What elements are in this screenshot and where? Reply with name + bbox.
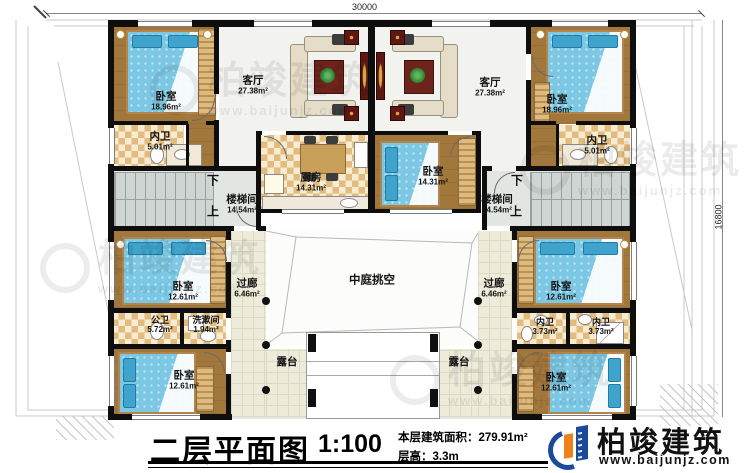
stair-up-text: 上 [207,205,219,219]
wall [226,226,231,240]
room-area: 27.38m² [475,88,505,97]
wall [112,308,231,313]
room-label-living-right: 客厅27.38m² [475,76,505,97]
room-name: 卧室 [545,371,566,383]
wall [186,124,189,168]
drawing-scale: 1:100 [318,430,382,459]
floor-corridor-left [231,231,266,417]
dimension-right-text: 16800 [714,204,724,229]
floor-height-text: 层高：3.3m [398,448,459,464]
stair-down-text: 下 [511,174,523,188]
dimension-right-value: 16800 [714,204,724,229]
wall [108,226,234,231]
room-name: 客厅 [479,76,500,88]
room-area: 18.96m² [542,105,572,114]
room-name: 卧室 [422,165,443,177]
stair-down-text: 下 [207,174,219,188]
floor-plan-canvas: 30000 16800 [0,0,750,473]
dimension-line-top [46,13,702,14]
wall [630,20,636,128]
wall [112,344,231,349]
lamp-icon [203,30,212,39]
wall [526,121,556,125]
wall [256,131,262,135]
company-logo-url: www.baijunjz.com [599,453,731,467]
room-label-bedroom-bottom-right: 卧室12.61m² [541,371,571,392]
cabinet [344,106,359,121]
wall [490,20,552,27]
window [109,128,115,164]
floor-hall-right [481,131,526,171]
stair-up-text: 上 [510,205,522,219]
room-area: 5.72m² [147,326,172,335]
roof-hatch-left [56,416,114,440]
wall [516,166,636,171]
room-area: 6.46m² [481,289,506,298]
window [552,21,608,27]
room-area: 12.61m² [168,292,198,301]
room-label-living-left: 客厅27.38m² [238,74,268,95]
window [631,128,637,164]
bed [122,237,212,305]
room-label-bath-top-left: 内卫5.01m² [147,130,172,151]
window [631,242,637,300]
room-name: 内卫 [586,134,607,146]
railing-post [308,389,316,407]
dimension-top-text: 30000 [352,2,377,12]
wall [452,209,481,213]
wall [258,226,266,231]
room-label-corridor-right: 过廊6.46m² [481,277,506,298]
room-area: 14.31m² [296,183,326,192]
room-label-bedroom-mid-left: 卧室12.61m² [168,280,198,301]
railing-post [430,334,438,352]
wall [512,344,636,349]
lamp-icon [116,30,125,39]
room-name: 过廊 [483,277,504,289]
room-area: 14.31m² [418,177,448,186]
wall [112,121,188,125]
wall [108,414,132,420]
window [631,356,637,406]
room-area: 12.61m² [541,383,571,392]
wall [180,313,184,344]
room-label-bedroom-mid-center: 卧室14.31m² [418,165,448,186]
wall [368,20,375,213]
room-name: 露台 [277,356,298,368]
lamp-icon [536,30,545,39]
title-underline [148,461,548,468]
floor-corridor-right [478,231,512,417]
room-area: 12.61m² [169,381,199,390]
wall [372,209,390,213]
company-logo-icon [548,422,594,468]
column [262,297,270,305]
room-name: 卧室 [172,280,193,292]
railing-post [308,334,316,352]
window [254,21,312,27]
room-area: 14.54m² [481,205,513,214]
plant-icon [410,68,425,83]
stair-down-label: 下 [207,172,219,189]
floor-hall-left [219,131,256,171]
room-area: 5.01m² [584,146,609,155]
toilet-icon [521,326,533,342]
room-name: 客厅 [242,74,263,86]
lamp-icon [116,240,125,249]
room-name: 卧室 [155,90,176,102]
room-label-stair-left: 楼梯间14.54m² [226,193,258,214]
column [474,341,482,349]
floor-area-text: 本层建筑面积：279.91m² [398,429,528,445]
room-label-atrium: 中庭挑空 [349,274,395,287]
room-area: 18.96m² [151,102,181,111]
lamp-icon [620,30,629,39]
room-area: 6.46m² [234,289,259,298]
room-name: 厨房 [300,171,321,183]
room-name: 卧室 [546,93,567,105]
column [474,386,482,394]
room-area: 5.01m² [147,142,172,151]
stair-treads-left [114,172,214,227]
room-label-stair-right: 楼梯间14.54m² [481,193,513,214]
room-label-bath-br-2: 内卫3.73m² [588,317,613,337]
room-name: 内卫 [536,317,554,327]
balcony-railing [306,332,440,419]
stair-down-label: 下 [511,172,523,189]
room-name: 洗漱间 [192,315,219,325]
window [390,209,452,214]
cabinet [344,30,359,45]
room-label-washroom: 洗漱间1.94m² [192,315,219,335]
room-name: 中庭挑空 [349,274,395,286]
railing-post [430,389,438,407]
wall [476,131,481,213]
window [132,415,200,420]
wall [256,131,261,230]
plant-icon [320,68,335,83]
wall [512,226,517,240]
wall [526,27,531,54]
window [432,21,490,27]
dining-table [300,144,346,174]
stair-treads-right [530,172,630,227]
room-label-kitchen: 厨房14.31m² [296,171,326,192]
floor-closet-top-right [531,124,556,168]
tv-cabinet [376,52,385,100]
stove-icon [354,142,368,168]
room-label-public-bath: 公卫5.72m² [147,315,172,335]
room-name: 公卫 [151,315,169,325]
room-name: 卧室 [550,280,571,292]
wall [526,80,531,171]
floor-atrium [266,231,478,345]
room-label-bedroom-top-left: 卧室18.96m² [151,90,181,111]
wall [108,20,114,128]
window [109,242,115,300]
room-label-corridor-left: 过廊6.46m² [234,277,259,298]
room-label-bedroom-top-right: 卧室18.96m² [542,93,572,114]
wall [214,120,219,171]
room-area: 14.54m² [226,205,258,214]
wall [286,131,372,135]
chair [304,136,316,144]
wall [556,124,559,168]
room-name: 楼梯间 [226,193,258,205]
dimension-top-value: 30000 [352,2,377,12]
wall [512,308,636,313]
wall [214,27,219,94]
column [262,341,270,349]
cabinet [390,106,405,121]
stair-up-label: 上 [510,203,522,220]
fridge-icon [264,174,284,194]
atrium-void-outline [266,231,478,345]
cabinet [390,30,405,45]
chair [326,136,338,144]
room-label-bedroom-mid-right: 卧室12.61m² [546,280,576,301]
room-name: 卧室 [173,369,194,381]
column [262,386,270,394]
room-name: 过廊 [236,277,257,289]
lamp-icon [620,240,629,249]
room-label-bath-br-1: 内卫3.73m² [532,317,557,337]
room-area: 1.94m² [192,326,219,335]
wall [576,121,636,125]
room-label-terrace-left: 露台 [277,356,298,368]
chair [326,173,338,181]
window [138,21,192,27]
room-area: 27.38m² [238,86,268,95]
room-name: 楼梯间 [481,193,513,205]
room-name: 内卫 [592,317,610,327]
wall [510,226,636,231]
stair-up-label: 上 [207,203,219,220]
wall [566,313,570,344]
window [109,356,115,406]
room-label-bedroom-bottom-left: 卧室12.61m² [169,369,199,390]
sink-icon [340,198,358,208]
window [282,209,344,214]
wall [192,20,254,27]
room-area: 3.73m² [532,328,557,337]
room-area: 12.61m² [546,292,576,301]
wall [226,374,231,420]
wall [112,166,258,171]
room-area: 3.73m² [588,328,613,337]
room-name: 内卫 [149,130,170,142]
wall [372,131,448,135]
wall [256,209,282,213]
room-label-terrace-right: 露台 [449,356,470,368]
room-name: 露台 [449,356,470,368]
wall [512,374,517,420]
room-label-bath-top-right: 内卫5.01m² [584,134,609,155]
